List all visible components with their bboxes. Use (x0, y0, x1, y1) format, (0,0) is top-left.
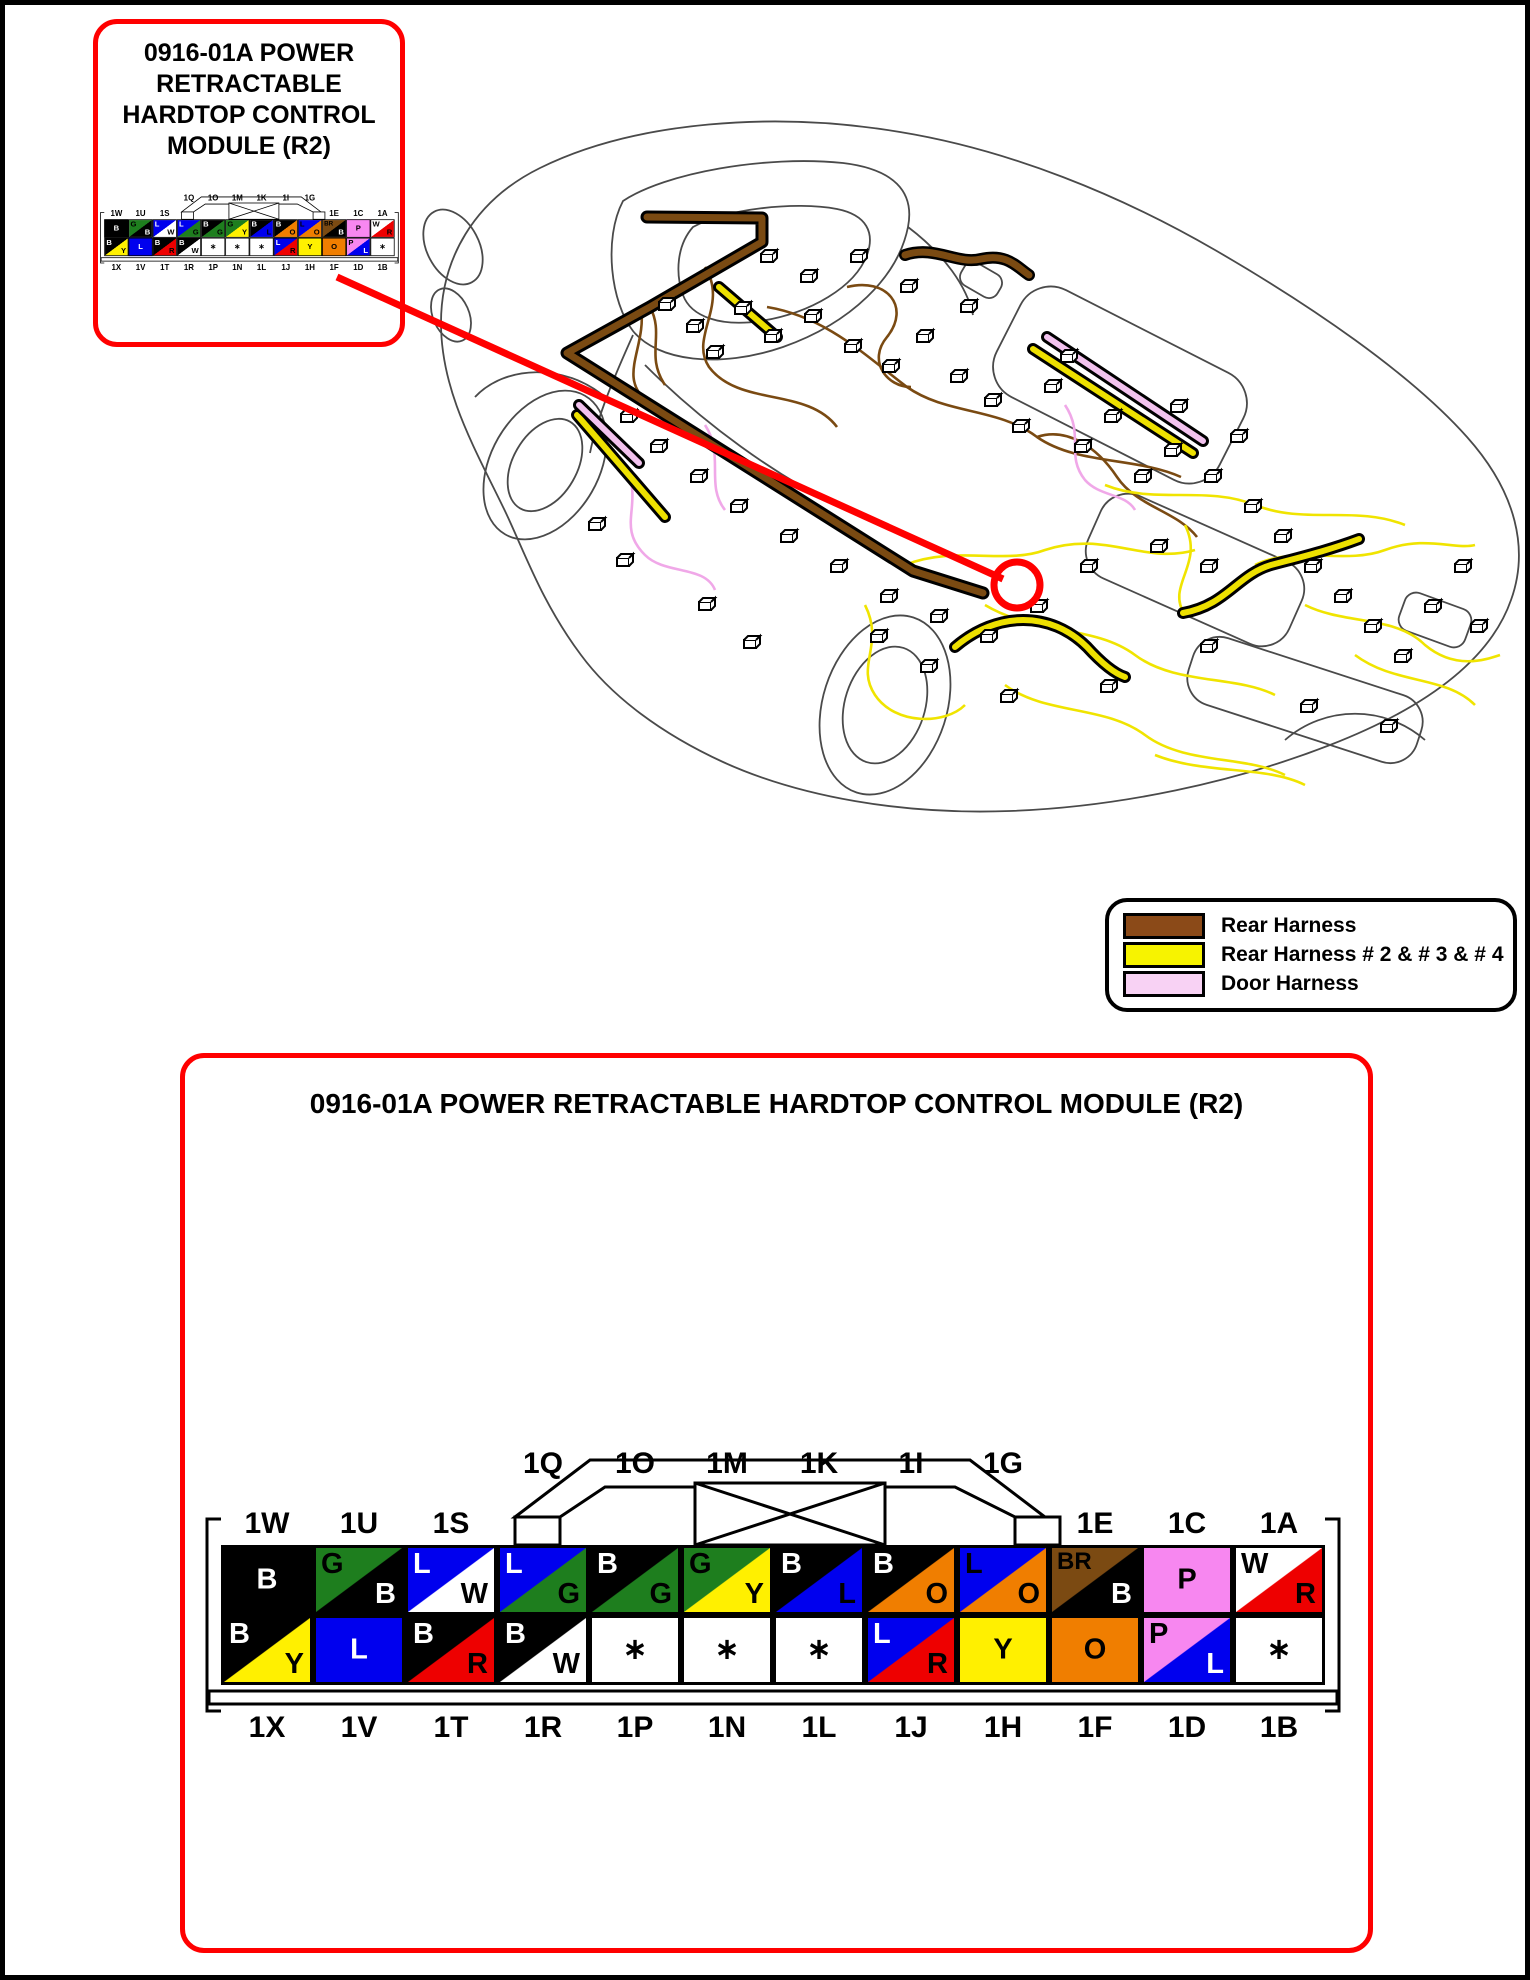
harness-connector-cube (1425, 600, 1441, 612)
harness-connector-cube (621, 410, 637, 422)
pin-wire-code: ∗ (592, 1636, 678, 1665)
pin-cell: B (221, 1545, 313, 1615)
bottom-pin-label: 1D (346, 263, 370, 272)
wiring-diagram-page: 0916-01A POWER RETRACTABLE HARDTOP CONTR… (0, 0, 1530, 1980)
pin-wire-code: L (363, 247, 368, 255)
pin-wire-code: B (505, 1620, 526, 1649)
pin-cell: BG (201, 219, 225, 237)
harness-legend: Rear Harness Rear Harness # 2 & # 3 & # … (1105, 898, 1517, 1012)
pin-wire-code: R (169, 247, 175, 255)
pin-cell: ∗ (249, 238, 273, 256)
harness-connector-cube (1301, 700, 1317, 712)
pin-wire-code: Y (285, 1650, 304, 1679)
pin-cell: BO (865, 1545, 957, 1615)
top-pin-label: 1U (313, 1507, 405, 1541)
harness-connector-cube (1171, 400, 1187, 412)
bridge-pin-label: 1G (957, 1447, 1049, 1481)
pin-wire-code: B (1111, 1580, 1132, 1609)
harness-connector-cube (1305, 560, 1321, 572)
harness-connector-cube (1075, 440, 1091, 452)
harness-connector-cube (1105, 410, 1121, 422)
pin-cell: BR (405, 1615, 497, 1685)
callout-title-line: RETRACTABLE (98, 69, 400, 100)
thin-harness-wires (625, 267, 1500, 785)
rear-harness-swatch (1123, 913, 1205, 939)
harness-connector-cube (1335, 590, 1351, 602)
pin-cell: WR (1233, 1545, 1325, 1615)
callout-title-line: HARDTOP CONTROL (98, 100, 400, 131)
harness-connector-cube (1201, 640, 1217, 652)
harness-connector-cube (951, 370, 967, 382)
harness-connector-cube (1395, 650, 1411, 662)
harness-connector-cube (1151, 540, 1167, 552)
bridge-pin-label: 1O (589, 1447, 681, 1481)
legend-row: Door Harness (1123, 969, 1499, 998)
pin-wire-code: R (927, 1650, 948, 1679)
pin-wire-code: P (348, 239, 353, 247)
pin-cell: BW (177, 238, 201, 256)
bottom-pin-label: 1V (128, 263, 152, 272)
pin-wire-code: R (387, 229, 393, 237)
pin-cell: WR (370, 219, 394, 237)
top-pin-label: 1E (322, 209, 346, 218)
pin-wire-code: W (553, 1650, 580, 1679)
pin-wire-code: L (300, 221, 305, 229)
pin-wire-code: B (203, 221, 209, 229)
pin-cell: BW (497, 1615, 589, 1685)
locator (337, 277, 1040, 608)
bottom-pin-label: 1L (773, 1711, 865, 1745)
pin-wire-code: L (276, 239, 281, 247)
pin-cell: BRB (322, 219, 346, 237)
pin-wire-code: L (505, 1550, 523, 1579)
bottom-pin-label: 1B (1233, 1711, 1325, 1745)
harness-connector-cube (761, 250, 777, 262)
pin-wire-code: L (1206, 1650, 1224, 1679)
pin-wire-code: BR (324, 221, 333, 227)
harness-connector-cube (651, 440, 667, 452)
pin-wire-code: G (217, 229, 223, 237)
harness-connector-cube (691, 470, 707, 482)
pin-wire-code: B (252, 221, 258, 229)
pin-cell: LR (865, 1615, 957, 1685)
pin-wire-code: B (105, 225, 128, 233)
top-pin-label: 1W (221, 1507, 313, 1541)
harness-connector-cube (1081, 560, 1097, 572)
pin-cell: BL (773, 1545, 865, 1615)
pin-wire-code: B (413, 1620, 434, 1649)
harness-connector-cube (765, 330, 781, 342)
harness-connector-cube (744, 636, 760, 648)
harness-connector-cube (1013, 420, 1029, 432)
pin-wire-code: G (321, 1550, 344, 1579)
harness-connector-cube (1061, 350, 1077, 362)
pin-cell: ∗ (370, 238, 394, 256)
bottom-pin-label: 1J (274, 263, 298, 272)
bottom-pin-label: 1V (313, 1711, 405, 1745)
pin-cell: GB (313, 1545, 405, 1615)
harness-connector-cube (831, 560, 847, 572)
pin-wire-code: R (290, 247, 296, 255)
pin-wire-code: B (229, 1620, 250, 1649)
pin-cell: LW (405, 1545, 497, 1615)
pin-cell: ∗ (1233, 1615, 1325, 1685)
legend-label: Rear Harness # 2 & # 3 & # 4 (1221, 943, 1504, 967)
bridge-pin-label: 1K (773, 1447, 865, 1481)
bottom-pin-label: 1F (322, 263, 346, 272)
harness-connector-cube (1031, 600, 1047, 612)
pin-cell: BL (249, 219, 273, 237)
pin-cell: GY (225, 219, 249, 237)
pin-wire-code: O (925, 1580, 948, 1609)
pin-wire-code: O (290, 229, 296, 237)
pin-wire-code: L (413, 1550, 431, 1579)
pin-wire-code: L (129, 243, 152, 251)
harness-connector-cube (961, 300, 977, 312)
pin-wire-code: R (467, 1650, 488, 1679)
top-pin-label: 1U (128, 209, 152, 218)
pin-cell: PL (1141, 1615, 1233, 1685)
harness-connector-cube (805, 310, 821, 322)
pin-cell: ∗ (201, 238, 225, 256)
pin-wire-code: ∗ (202, 243, 225, 251)
bridge-pin-label: 1Q (177, 194, 201, 203)
pin-wire-code: ∗ (371, 243, 394, 251)
pin-wire-code: P (1149, 1620, 1168, 1649)
harness-connector-cube (781, 530, 797, 542)
callout-pointer-line (337, 277, 1003, 579)
connector-pinout-diagram: 1Q1O1M1K1I1G1W1U1S1E1C1ABGBLWLGBGGYBLBOL… (201, 1445, 1345, 1755)
pin-cell: BR (153, 238, 177, 256)
callout-title-line: 0916-01A POWER (98, 38, 400, 69)
pin-wire-code: G (227, 221, 233, 229)
door-harness-segments (579, 337, 1203, 463)
bottom-pin-label: 1P (201, 263, 225, 272)
callout-box: 0916-01A POWER RETRACTABLE HARDTOP CONTR… (93, 19, 405, 347)
bridge-pin-label: 1I (865, 1447, 957, 1481)
pin-wire-code: P (1144, 1566, 1230, 1595)
harness-connector-cube (1205, 470, 1221, 482)
pin-wire-code: Y (960, 1636, 1046, 1665)
pin-wire-code: L (316, 1636, 402, 1665)
harness-connector-cube (921, 660, 937, 672)
pin-wire-code: R (1295, 1580, 1316, 1609)
harness-connector-cube (881, 590, 897, 602)
bottom-pin-label: 1N (681, 1711, 773, 1745)
top-pin-label: 1A (1233, 1507, 1325, 1541)
harness-connector-cube (617, 554, 633, 566)
pin-wire-code: ∗ (250, 243, 273, 251)
pin-wire-code: B (873, 1550, 894, 1579)
pin-cell: BO (274, 219, 298, 237)
pin-cell: ∗ (225, 238, 249, 256)
pin-cell: PL (346, 238, 370, 256)
pin-wire-code: L (873, 1620, 891, 1649)
pin-wire-code: O (1017, 1580, 1040, 1609)
pin-wire-code: B (106, 239, 112, 247)
legend-label: Rear Harness (1221, 914, 1356, 938)
bottom-pin-label: 1H (298, 263, 322, 272)
harness-connector-cube (735, 302, 751, 314)
pin-cell: ∗ (681, 1615, 773, 1685)
harness-connector-cube (931, 610, 947, 622)
pin-wire-code: ∗ (1236, 1636, 1322, 1665)
pin-cell: LG (177, 219, 201, 237)
harness-connector-cube (589, 518, 605, 530)
pin-cell: BRB (1049, 1545, 1141, 1615)
pin-wire-code: B (224, 1566, 310, 1595)
harness-connector-cube (871, 630, 887, 642)
bottom-pin-label: 1T (405, 1711, 497, 1745)
harness-connector-cube (845, 340, 861, 352)
bottom-pin-label: 1H (957, 1711, 1049, 1745)
harness-connector-cube (985, 394, 1001, 406)
pin-wire-code: ∗ (776, 1636, 862, 1665)
bridge-pin-label: 1G (298, 194, 322, 203)
module-panel-title: 0916-01A POWER RETRACTABLE HARDTOP CONTR… (185, 1088, 1368, 1120)
harness-connector-cube (1101, 680, 1117, 692)
bottom-pin-label: 1F (1049, 1711, 1141, 1745)
harness-connector-cube (707, 346, 723, 358)
pin-cell: LG (497, 1545, 589, 1615)
pin-cell: L (313, 1615, 405, 1685)
pin-cell: ∗ (589, 1615, 681, 1685)
pin-cell: B (104, 219, 128, 237)
pin-wire-code: W (1241, 1550, 1268, 1579)
bridge-pin-label: 1M (225, 194, 249, 203)
pin-cell: BY (221, 1615, 313, 1685)
pin-cell: LR (274, 238, 298, 256)
pin-wire-code: G (689, 1550, 712, 1579)
pin-wire-code: ∗ (684, 1636, 770, 1665)
harness-connector-cube (659, 298, 675, 310)
top-pin-label: 1W (104, 209, 128, 218)
bottom-pin-label: 1R (177, 263, 201, 272)
harness-connector-cube (1245, 500, 1261, 512)
bottom-pin-label: 1P (589, 1711, 681, 1745)
legend-label: Door Harness (1221, 972, 1359, 996)
harness-connector-cube (1165, 444, 1181, 456)
top-pin-label: 1A (370, 209, 394, 218)
rear-harness-main (567, 217, 1029, 593)
bottom-pin-label: 1X (104, 263, 128, 272)
pin-wire-code: O (323, 243, 346, 251)
pin-wire-code: B (179, 239, 185, 247)
pin-cell: ∗ (773, 1615, 865, 1685)
pin-cell: Y (957, 1615, 1049, 1685)
harness-connector-cube (981, 630, 997, 642)
pin-wire-code: W (373, 221, 380, 229)
top-pin-label: 1S (153, 209, 177, 218)
rear-harness-234-swatch (1123, 942, 1205, 968)
pin-wire-code: B (338, 229, 344, 237)
legend-row: Rear Harness # 2 & # 3 & # 4 (1123, 941, 1499, 970)
bottom-pin-label: 1T (153, 263, 177, 272)
rear-harness-234-segments (577, 287, 1359, 677)
pin-cell: GB (128, 219, 152, 237)
harness-connector-cube (901, 280, 917, 292)
bottom-pin-label: 1J (865, 1711, 957, 1745)
harness-connector-cube (1231, 430, 1247, 442)
bridge-pin-label: 1M (681, 1447, 773, 1481)
top-pin-label: 1E (1049, 1507, 1141, 1541)
harness-connector-cube (1045, 380, 1061, 392)
harness-connector-cube (1365, 620, 1381, 632)
pin-wire-code: B (375, 1580, 396, 1609)
pin-wire-code: B (145, 229, 151, 237)
top-pin-label: 1C (346, 209, 370, 218)
pin-wire-code: B (276, 221, 282, 229)
pin-cell: P (1141, 1545, 1233, 1615)
pin-wire-code: W (461, 1580, 488, 1609)
harness-connector-cube (883, 360, 899, 372)
connector-location-marker (994, 562, 1040, 608)
pin-wire-code: L (267, 229, 272, 237)
pin-cell: GY (681, 1545, 773, 1615)
pin-wire-code: B (597, 1550, 618, 1579)
bottom-pin-label: 1D (1141, 1711, 1233, 1745)
harness-connector-cube (917, 330, 933, 342)
pin-wire-code: G (649, 1580, 672, 1609)
harness-connector-cube (801, 270, 817, 282)
top-pin-label: 1C (1141, 1507, 1233, 1541)
pin-cell: L (128, 238, 152, 256)
pin-wire-code: ∗ (226, 243, 249, 251)
top-pin-label: 1S (405, 1507, 497, 1541)
pin-cell: LO (298, 219, 322, 237)
bottom-pin-label: 1X (221, 1711, 313, 1745)
pin-cell: BG (589, 1545, 681, 1615)
pin-wire-code: L (838, 1580, 856, 1609)
pin-wire-code: L (965, 1550, 983, 1579)
callout-title: 0916-01A POWER RETRACTABLE HARDTOP CONTR… (98, 38, 400, 162)
pin-wire-code: O (1052, 1636, 1138, 1665)
pin-cell: O (1049, 1615, 1141, 1685)
bridge-pin-label: 1I (274, 194, 298, 203)
harness-connector-cube (731, 500, 747, 512)
callout-title-line: MODULE (R2) (98, 131, 400, 162)
legend-row: Rear Harness (1123, 912, 1499, 941)
pin-wire-code: BR (1057, 1550, 1092, 1574)
pin-wire-code: W (191, 247, 198, 255)
pin-wire-code: L (155, 221, 160, 229)
harness-connector-cube (1201, 560, 1217, 572)
pin-wire-code: P (347, 225, 370, 233)
pin-wire-code: Y (242, 229, 247, 237)
pin-cell: LW (153, 219, 177, 237)
harness-connector-cube (687, 320, 703, 332)
harness-connector-cube (1381, 720, 1397, 732)
pin-wire-code: G (193, 229, 199, 237)
mini-connector-pinout: 1Q1O1M1K1I1G1W1U1S1E1C1ABGBLWLGBGGYBLBOL… (99, 193, 404, 279)
pin-wire-code: B (781, 1550, 802, 1579)
pin-wire-code: Y (745, 1580, 764, 1609)
harness-connector-cube (1275, 530, 1291, 542)
bottom-pin-label: 1B (370, 263, 394, 272)
harness-connector-cube (1001, 690, 1017, 702)
bridge-pin-label: 1Q (497, 1447, 589, 1481)
bridge-pin-label: 1K (249, 194, 273, 203)
pin-wire-code: B (155, 239, 161, 247)
pin-cell: Y (298, 238, 322, 256)
connector-cubes (589, 250, 1487, 732)
harness-connector-cube (1455, 560, 1471, 572)
pin-cell: P (346, 219, 370, 237)
pin-cell: LO (957, 1545, 1049, 1615)
pin-wire-code: O (314, 229, 320, 237)
harness-connector-cube (1135, 470, 1151, 482)
pin-wire-code: W (167, 229, 174, 237)
bottom-pin-label: 1R (497, 1711, 589, 1745)
pin-cell: O (322, 238, 346, 256)
pin-wire-code: Y (121, 247, 126, 255)
bottom-pin-label: 1L (249, 263, 273, 272)
pin-wire-code: G (557, 1580, 580, 1609)
pin-cell: BY (104, 238, 128, 256)
harness-connector-cube (699, 598, 715, 610)
door-harness-swatch (1123, 971, 1205, 997)
harness-connector-cube (851, 250, 867, 262)
pin-wire-code: G (131, 221, 137, 229)
pin-wire-code: L (179, 221, 184, 229)
bottom-pin-label: 1N (225, 263, 249, 272)
car-body-outline (411, 122, 1519, 812)
harness-connector-cube (1471, 620, 1487, 632)
bridge-pin-label: 1O (201, 194, 225, 203)
pin-wire-code: Y (299, 243, 322, 251)
